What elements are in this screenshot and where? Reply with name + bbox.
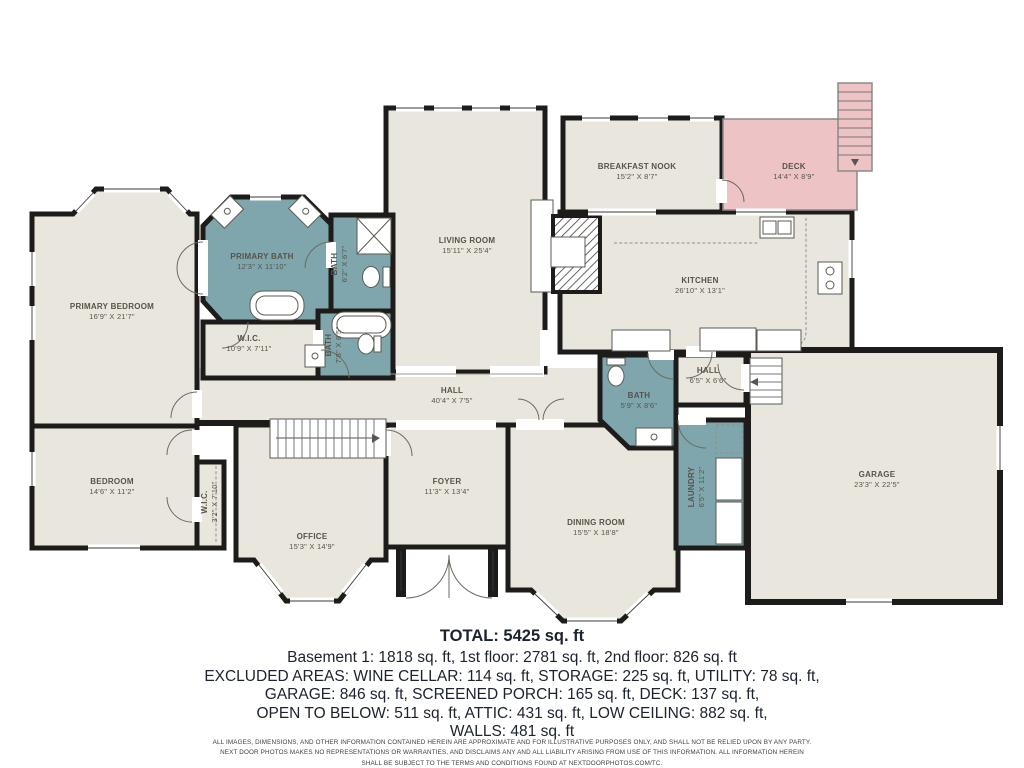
summary-line: GARAGE: 846 sq. ft, SCREENED PORCH: 165 … — [0, 686, 1024, 705]
label-primary-bath: PRIMARY BATH 12'3" X 11'10" — [230, 252, 293, 272]
label-wic-primary: W.I.C. 10'9" X 7'11" — [226, 334, 271, 354]
label-bath-lower: BATH 5'9" X 8'6" — [621, 391, 658, 411]
label-bath-mid: BATH 7'8" X 8'5" — [324, 327, 344, 364]
floor-plan-page: PRIMARY BEDROOM 16'9" X 21'7" PRIMARY BA… — [0, 0, 1024, 768]
summary-line: EXCLUDED AREAS: WINE CELLAR: 114 sq. ft,… — [0, 668, 1024, 687]
label-garage: GARAGE 23'3" X 22'5" — [854, 470, 900, 490]
summary-line: OPEN TO BELOW: 511 sq. ft, ATTIC: 431 sq… — [0, 705, 1024, 724]
toilet-tank-lower — [607, 358, 625, 365]
label-breakfast-nook: BREAKFAST NOOK 15'2" X 8'7" — [598, 162, 677, 182]
total-area: TOTAL: 5425 sq. ft — [0, 627, 1024, 646]
toilet-tank-mid — [374, 336, 381, 352]
deck-stairs — [838, 83, 872, 171]
label-bedroom: BEDROOM 14'6" X 11'2" — [89, 477, 134, 497]
washer — [716, 458, 742, 500]
disclaimer-line: ALL IMAGES, DIMENSIONS, AND OTHER INFORM… — [0, 738, 1024, 748]
label-hall-small: HALL 6'5" X 6'6" — [690, 366, 727, 386]
label-dining-room: DINING ROOM 15'5" X 18'8" — [567, 518, 625, 538]
lower-bath-sink — [636, 428, 672, 446]
fireplace-breast — [531, 200, 553, 292]
label-laundry: LAUNDRY 6'5" X 11'2" — [687, 467, 707, 508]
toilet-upper — [363, 267, 380, 288]
fireplace-box — [551, 237, 585, 267]
summary-line: Basement 1: 1818 sq. ft, 1st floor: 2781… — [0, 649, 1024, 668]
main-stairs — [270, 419, 386, 458]
label-hall: HALL 40'4" X 7'5" — [431, 386, 472, 406]
label-kitchen: KITCHEN 26'10" X 13'1" — [675, 276, 725, 296]
disclaimer-line: SHALL BE SUBJECT TO THE TERMS AND CONDIT… — [0, 759, 1024, 768]
dryer — [716, 502, 742, 544]
label-primary-bedroom: PRIMARY BEDROOM 16'9" X 21'7" — [70, 302, 154, 322]
label-foyer: FOYER 11'3" X 13'4" — [424, 477, 469, 497]
entry-double-door — [406, 555, 492, 598]
garage-stairs — [750, 358, 782, 404]
area-summary: TOTAL: 5425 sq. ft Basement 1: 1818 sq. … — [0, 627, 1024, 742]
label-bath-upper: BATH 6'2" X 6'7" — [330, 246, 350, 283]
toilet-tank-upper — [383, 267, 390, 287]
toilet-lower — [608, 366, 624, 386]
label-deck: DECK 14'4" X 8'9" — [773, 162, 814, 182]
disclaimer-line: NEXT DOOR PHOTOS MAKES NO REPRESENTATION… — [0, 748, 1024, 758]
powder-sink — [305, 345, 325, 367]
label-office: OFFICE 15'3" X 14'9" — [289, 532, 335, 552]
toilet-mid — [358, 334, 374, 354]
primary-bathtub — [250, 291, 304, 320]
label-wic-small: W.I.C. 3'2" X 7'10" — [200, 481, 220, 522]
disclaimer: ALL IMAGES, DIMENSIONS, AND OTHER INFORM… — [0, 738, 1024, 768]
label-living-room: LIVING ROOM 15'11" X 25'4" — [439, 236, 496, 256]
